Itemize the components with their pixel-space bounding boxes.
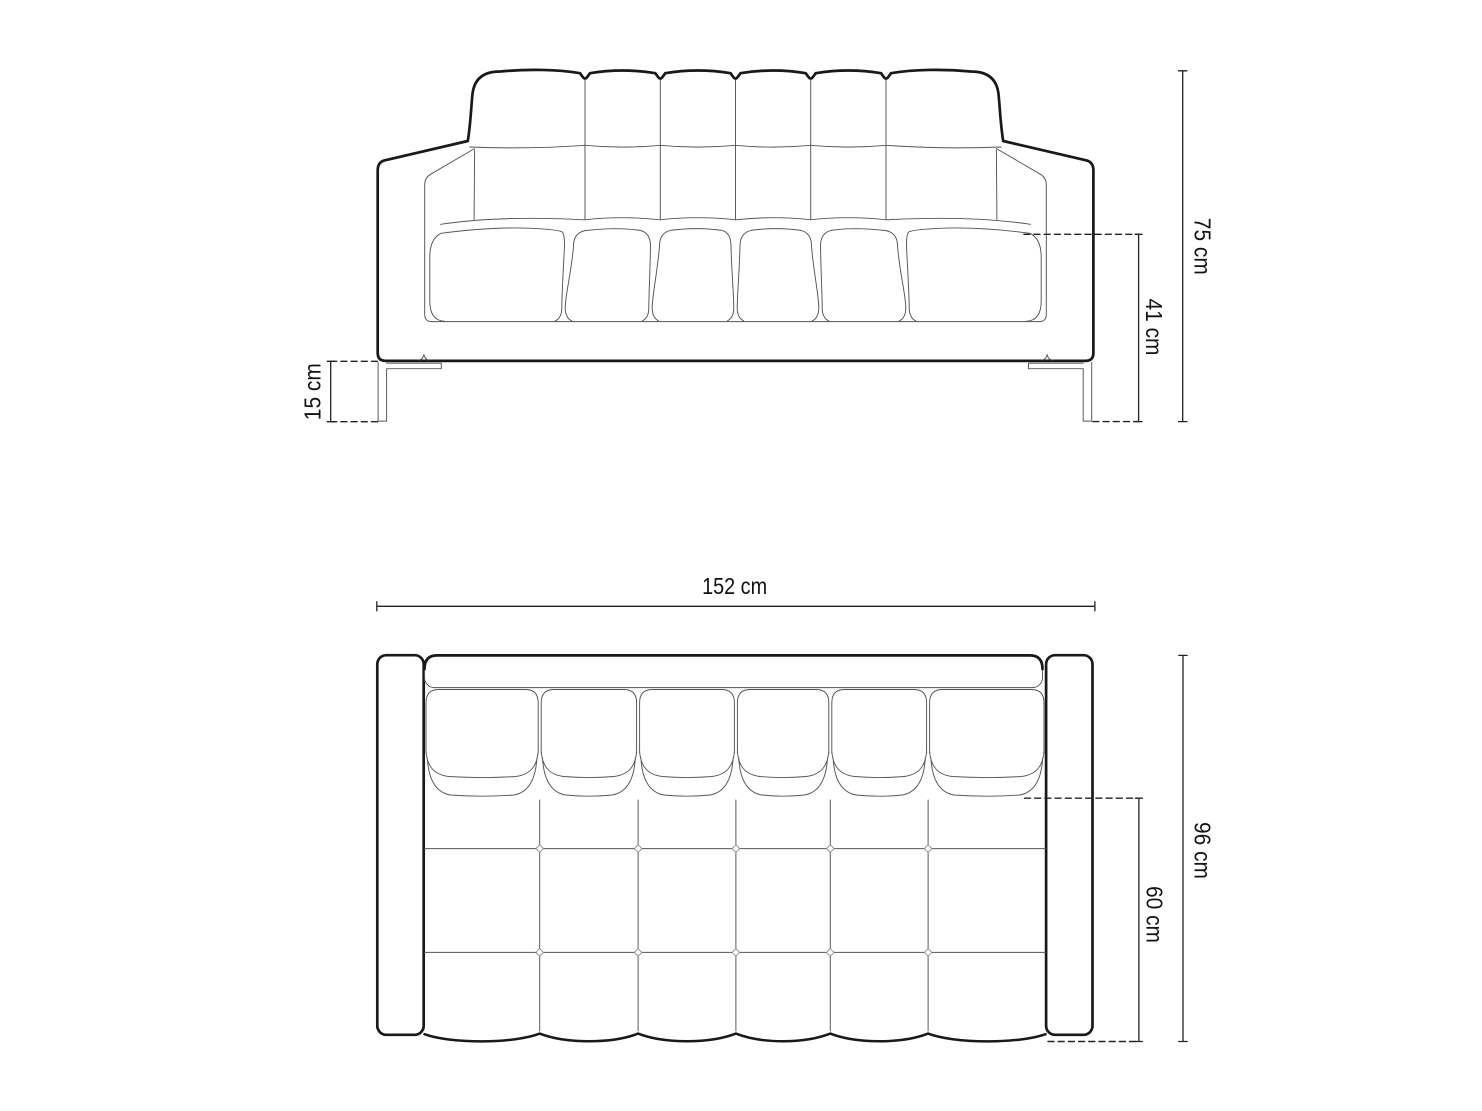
svg-text:152 cm: 152 cm: [702, 573, 767, 599]
svg-text:75 cm: 75 cm: [1190, 218, 1216, 275]
svg-text:96 cm: 96 cm: [1190, 822, 1216, 879]
svg-text:41 cm: 41 cm: [1141, 299, 1167, 356]
svg-text:60 cm: 60 cm: [1141, 886, 1167, 943]
svg-text:15 cm: 15 cm: [299, 363, 325, 420]
